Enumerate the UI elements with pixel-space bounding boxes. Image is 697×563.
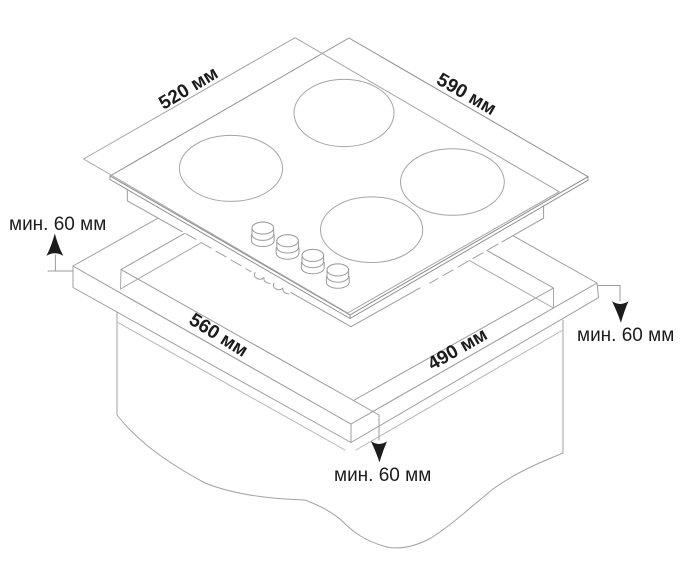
svg-text:мин. 60 мм: мин. 60 мм: [334, 465, 431, 486]
svg-text:мин. 60 мм: мин. 60 мм: [577, 325, 674, 346]
svg-text:мин. 60 мм: мин. 60 мм: [9, 214, 106, 235]
